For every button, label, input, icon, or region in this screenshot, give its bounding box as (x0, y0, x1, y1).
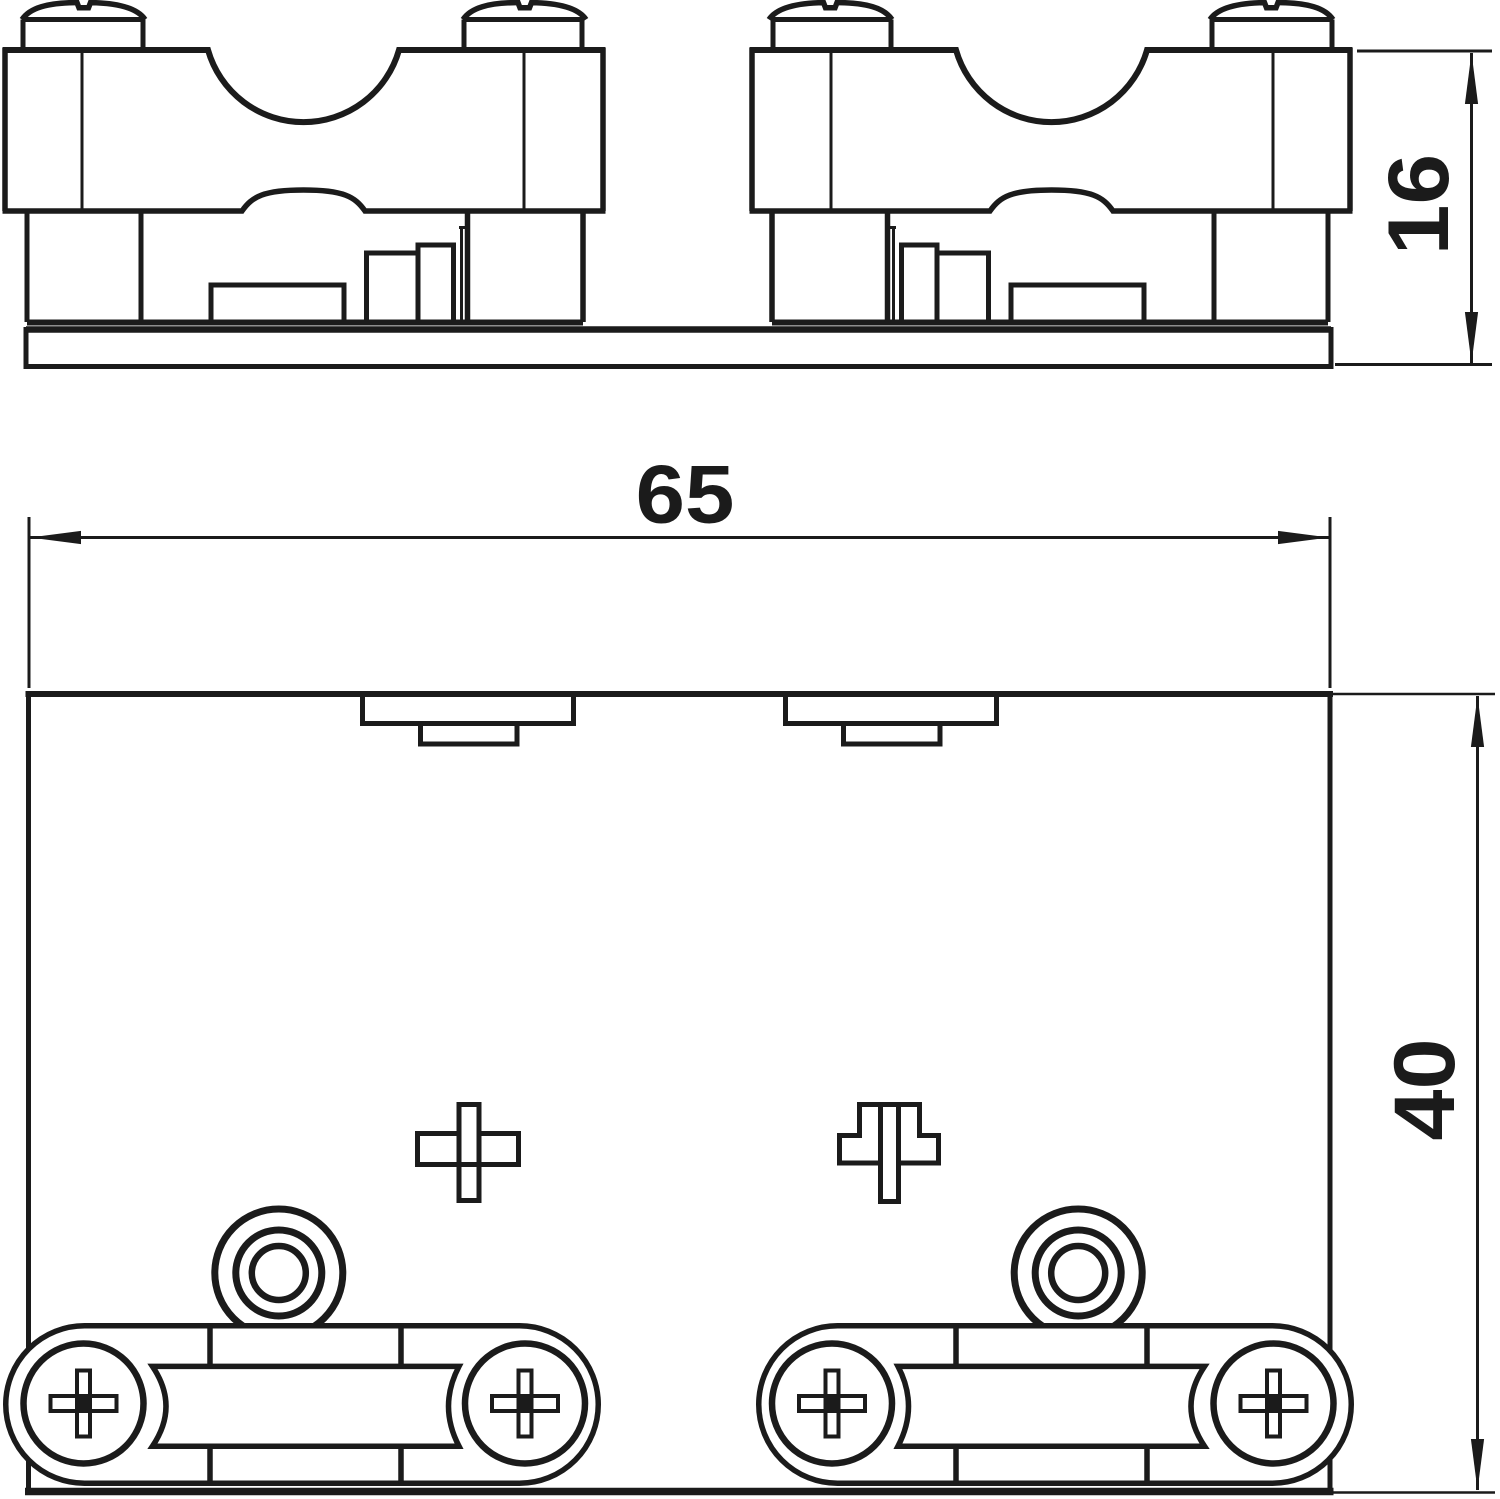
svg-text:65: 65 (636, 448, 735, 541)
svg-text:40: 40 (1376, 1038, 1473, 1140)
svg-text:16: 16 (1370, 154, 1466, 255)
